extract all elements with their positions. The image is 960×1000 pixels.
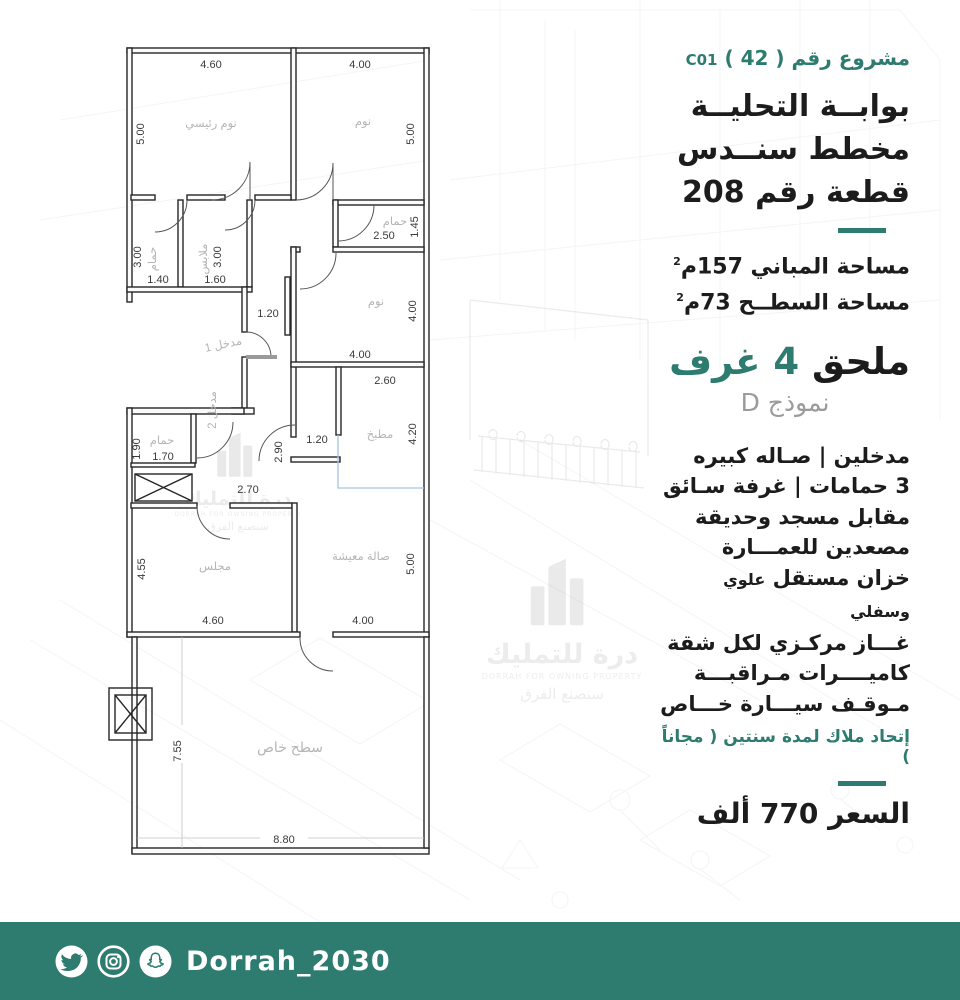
dim-label: 3.00 <box>132 246 144 267</box>
title-block: بوابــة التحليــة مخطط سنــدس قطعة رقم 2… <box>660 85 910 214</box>
dim-label: 4.60 <box>202 615 223 627</box>
elevator-shaft <box>109 474 192 740</box>
dim-label: 5.00 <box>135 123 147 144</box>
building-area-text: مساحة المباني 157م <box>681 254 910 279</box>
feature-item: مقابل مسجد وحديقة <box>660 502 910 533</box>
room-labels: نوم رئيسي نوم حمام ملابس حمام نوم مطبخ م… <box>147 116 407 756</box>
dim-label: 2.70 <box>237 484 258 496</box>
dim-label: 4.20 <box>407 423 419 444</box>
room-label-entrance1: مدخل 1 <box>204 335 243 355</box>
door-leaf <box>246 355 277 359</box>
room-label-bath: حمام <box>147 247 159 271</box>
owners-union-note: إتحاد ملاك لمدة سنتين ( مجاناً ) <box>660 727 910 767</box>
room-label-bath: حمام <box>383 216 407 228</box>
dorrah-logo-icon <box>523 555 601 633</box>
dim-label: 2.90 <box>273 441 285 462</box>
features-list: مدخلين | صـاله كبيره 3 حمامات | غرفة سـا… <box>660 441 910 720</box>
roof-area-sup: 2 <box>676 291 684 304</box>
roof-area-text: مساحة السطــح 73م <box>684 291 910 316</box>
annex-rooms: 4 غرف <box>669 340 799 383</box>
instagram-icon[interactable] <box>97 945 130 978</box>
dim-label: 4.60 <box>200 59 221 71</box>
social-handle[interactable]: Dorrah_2030 <box>186 946 391 977</box>
dim-label: 4.00 <box>349 349 370 361</box>
title-line-1: بوابــة التحليــة <box>660 85 910 128</box>
dim-label: 2.50 <box>373 230 394 242</box>
room-label-kitchen: مطبخ <box>367 429 394 441</box>
annex-line: ملحق 4 غرف <box>660 340 910 384</box>
watermark-tagline: سنصنع الفرق <box>462 685 662 703</box>
room-label-bedroom: نوم <box>355 116 371 129</box>
feature-item: مدخلين | صـاله كبيره <box>660 441 910 472</box>
feature-item: خزان مستقل علوي وسفلي <box>660 563 910 628</box>
room-label-master: نوم رئيسي <box>185 118 237 131</box>
dim-label: 2.60 <box>374 375 395 387</box>
room-label-entrance2: مدخل 2 <box>207 391 219 429</box>
dim-label: 1.40 <box>147 274 168 286</box>
watermark-brand-ar: درة للتمليك <box>462 639 662 670</box>
feature-item: مـوقـف سيـــارة خـــاص <box>660 689 910 720</box>
building-area-line: مساحة المباني 157م2 <box>660 246 910 282</box>
project-number-ar: مشروع رقم ( 42 ) <box>724 46 910 70</box>
dim-label: 7.55 <box>172 740 184 761</box>
divider <box>838 228 886 233</box>
project-code: C01 <box>686 51 718 69</box>
floor-plan: 4.60 4.00 5.00 5.00 3.00 1.40 3.00 1.60 … <box>108 37 430 860</box>
model-line: نموذج D <box>660 388 910 417</box>
feature-item: كاميــــرات مـراقبـــة <box>660 658 910 689</box>
room-label-living: صالة معيشة <box>332 551 390 563</box>
dim-label: 1.70 <box>152 451 173 463</box>
title-line-2: مخطط سنــدس <box>660 128 910 171</box>
building-area-sup: 2 <box>673 255 681 268</box>
dimension-labels: 4.60 4.00 5.00 5.00 3.00 1.40 3.00 1.60 … <box>131 59 421 846</box>
room-label-bath: حمام <box>150 435 174 447</box>
dim-label: 1.20 <box>257 308 278 320</box>
areas-block: مساحة المباني 157م2 مساحة السطــح 73م2 <box>660 246 910 319</box>
annex-label: ملحق <box>812 340 910 383</box>
dim-label: 4.55 <box>136 558 148 579</box>
dim-label: 1.45 <box>409 216 421 237</box>
twitter-icon[interactable] <box>55 945 88 978</box>
room-label-majlis: مجلس <box>199 561 231 574</box>
feature-item: 3 حمامات | غرفة سـائق <box>660 471 910 502</box>
feature-item: غـــاز مركـزي لكل شقة <box>660 628 910 659</box>
project-number-line: مشروع رقم ( 42 ) C01 <box>660 45 910 73</box>
dim-label: 5.00 <box>405 123 417 144</box>
dim-label: 1.60 <box>204 274 225 286</box>
dim-label: 4.00 <box>352 615 373 627</box>
feature-item: مصعدين للعمـــارة <box>660 532 910 563</box>
feature-tank-main: خزان مستقل <box>773 566 910 590</box>
dim-label: 5.00 <box>405 553 417 574</box>
dim-label: 1.90 <box>131 438 143 459</box>
dim-label: 3.00 <box>212 246 224 267</box>
divider <box>838 781 886 786</box>
social-icons <box>55 945 172 978</box>
snapchat-icon[interactable] <box>139 945 172 978</box>
footer-bar: Dorrah_2030 <box>0 922 960 1000</box>
title-line-3: قطعة رقم 208 <box>660 171 910 214</box>
info-panel: مشروع رقم ( 42 ) C01 بوابــة التحليــة م… <box>660 45 910 830</box>
watermark-brand-en: DORRAH FOR OWNING PROPERTY <box>462 672 662 681</box>
price-line: السعر 770 ألف <box>660 797 910 830</box>
dim-label: 4.00 <box>349 59 370 71</box>
watermark-logo: درة للتمليك DORRAH FOR OWNING PROPERTY س… <box>462 555 662 703</box>
dim-label: 1.20 <box>306 434 327 446</box>
dim-label: 4.00 <box>407 300 419 321</box>
dim-label: 8.80 <box>273 834 294 846</box>
room-label-bedroom: نوم <box>368 296 384 309</box>
roof-area-line: مساحة السطــح 73م2 <box>660 282 910 318</box>
room-label-roof: سطح خاص <box>257 739 323 756</box>
room-label-closet: ملابس <box>198 244 211 275</box>
